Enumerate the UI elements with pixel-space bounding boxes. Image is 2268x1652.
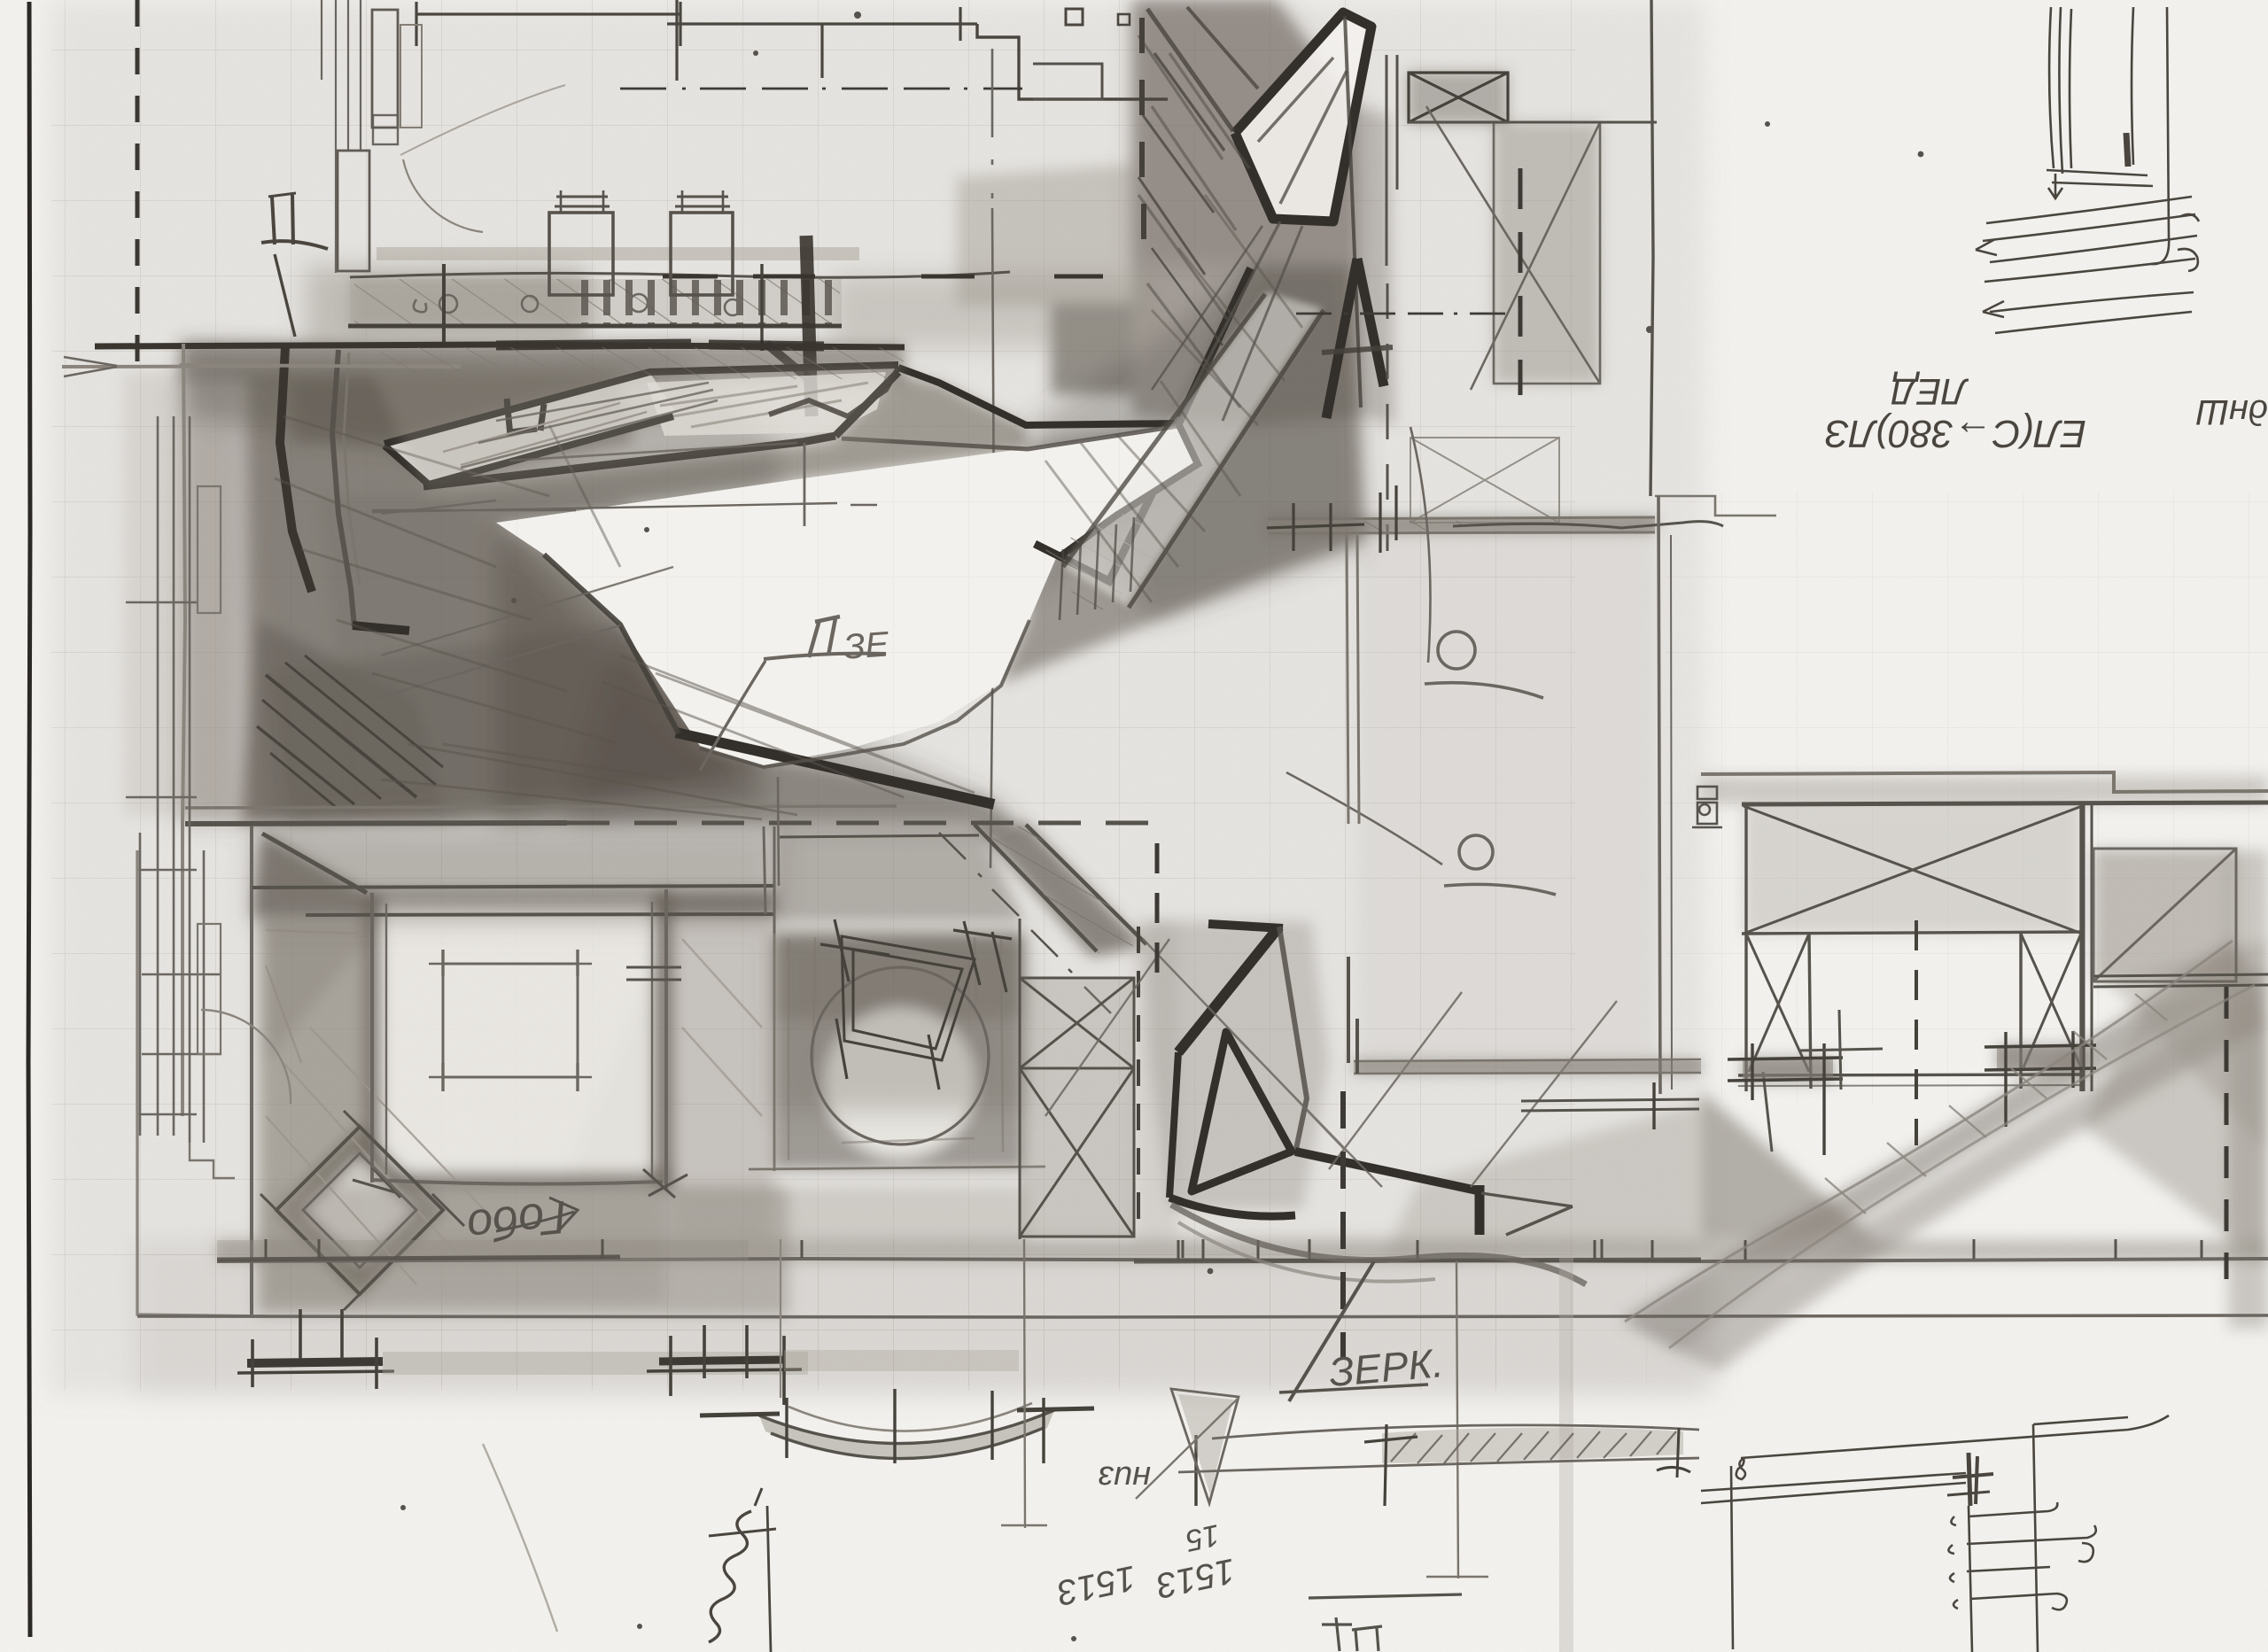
- svg-text:ЕЛ(С→380)ЛЗ: ЕЛ(С→380)ЛЗ: [1825, 412, 2086, 455]
- svg-text:ЗЕ: ЗЕ: [842, 624, 890, 667]
- svg-text:ЛЕД: ЛЕД: [1891, 371, 1969, 413]
- svg-text:15: 15: [1183, 1517, 1223, 1557]
- svg-text:днШ: днШ: [2196, 392, 2268, 431]
- svg-text:низ: низ: [1098, 1459, 1151, 1496]
